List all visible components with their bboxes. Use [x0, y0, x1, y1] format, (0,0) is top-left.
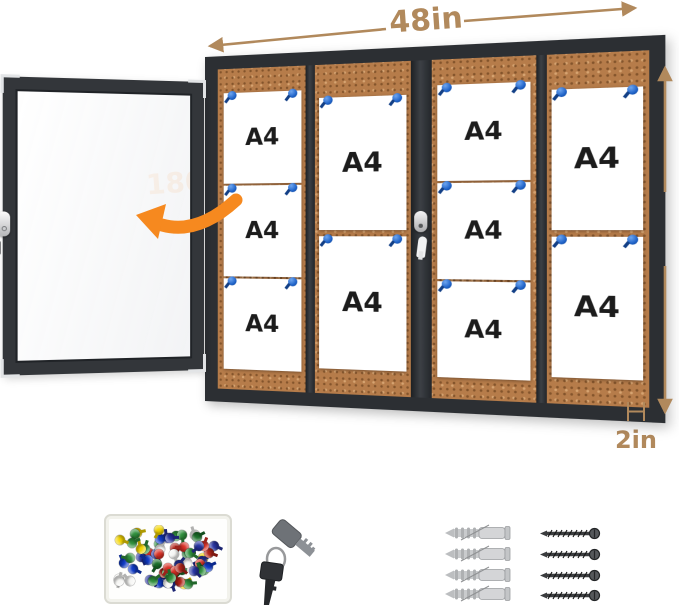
- push-pin-icon: [323, 95, 332, 105]
- push-pin-icon: [288, 183, 297, 192]
- corner-bracket-icon: [188, 354, 206, 373]
- push-pin-icon: [515, 280, 525, 290]
- push-pin-icon: [392, 234, 402, 244]
- depth-dimension-label: 2in: [606, 426, 666, 454]
- sheet-label: A4: [245, 218, 279, 245]
- loose-push-pin-icon: [123, 574, 137, 588]
- push-pin-icon: [228, 276, 237, 285]
- push-pin-icon: [515, 80, 525, 90]
- corner-bracket-icon: [188, 80, 206, 99]
- push-pin-icon: [627, 84, 638, 94]
- keys-image: [246, 516, 326, 605]
- sheet-label: A4: [342, 287, 383, 319]
- sheet-label: A4: [245, 311, 279, 338]
- screws-image: [540, 526, 604, 602]
- a4-sheet: A4: [319, 236, 406, 371]
- sheet-label: A4: [245, 124, 279, 151]
- sheet-label: A4: [574, 142, 620, 176]
- push-pin-icon: [323, 234, 332, 243]
- a4-sheet: A4: [552, 237, 644, 381]
- door-latch-icon: [0, 241, 1, 256]
- a4-sheet: A4: [437, 182, 530, 280]
- door-lock-icon: [0, 211, 10, 236]
- a4-sheet: A4: [224, 185, 302, 277]
- a4-sheet: A4: [319, 95, 406, 230]
- door-frame-mullion: [536, 55, 547, 403]
- push-pin-icon: [392, 93, 402, 103]
- push-pin-icon: [556, 87, 567, 97]
- cork-board: A4 A4 A4 A4 A4 A4 A4 A4 A4 A4: [218, 50, 650, 408]
- pushpin-pile: [113, 525, 223, 595]
- pushpin-box: [104, 514, 232, 604]
- door-frame-mullion: [306, 65, 315, 393]
- push-pin-icon: [228, 91, 237, 100]
- push-pin-icon: [442, 83, 452, 93]
- push-pin-icon: [288, 88, 297, 98]
- sheet-label: A4: [464, 217, 502, 245]
- sheet-label: A4: [342, 147, 383, 179]
- open-door: [3, 76, 204, 375]
- push-pin-icon: [228, 184, 237, 193]
- corner-bracket-icon: [1, 359, 20, 378]
- sheet-label: A4: [464, 117, 502, 146]
- sheet-label: A4: [574, 291, 620, 325]
- a4-sheet: A4: [224, 90, 302, 183]
- loose-push-pin-icon: [125, 552, 137, 564]
- loose-push-pin-icon: [113, 534, 126, 547]
- product-image: 48in 30in 2in 180° A4 A4 A4 A4 A4 A4 A4 …: [0, 0, 679, 605]
- loose-push-pin-icon: [165, 533, 175, 543]
- corner-bracket-icon: [1, 74, 20, 93]
- push-pin-icon: [515, 180, 525, 190]
- width-dimension-label: 48in: [385, 0, 467, 40]
- push-pin-icon: [288, 277, 297, 286]
- sheet-label: A4: [464, 316, 502, 345]
- a4-sheet: A4: [437, 281, 530, 380]
- display-cabinet: A4 A4 A4 A4 A4 A4 A4 A4 A4 A4: [205, 35, 665, 423]
- push-pin-icon: [556, 234, 567, 244]
- a4-sheet: A4: [552, 86, 644, 230]
- push-pin-icon: [442, 279, 452, 289]
- a4-sheet: A4: [224, 278, 302, 371]
- wall-anchors-image: [445, 524, 513, 602]
- push-pin-icon: [442, 181, 452, 191]
- lock-icon: [414, 211, 427, 232]
- a4-sheet: A4: [437, 82, 530, 181]
- push-pin-icon: [627, 235, 638, 245]
